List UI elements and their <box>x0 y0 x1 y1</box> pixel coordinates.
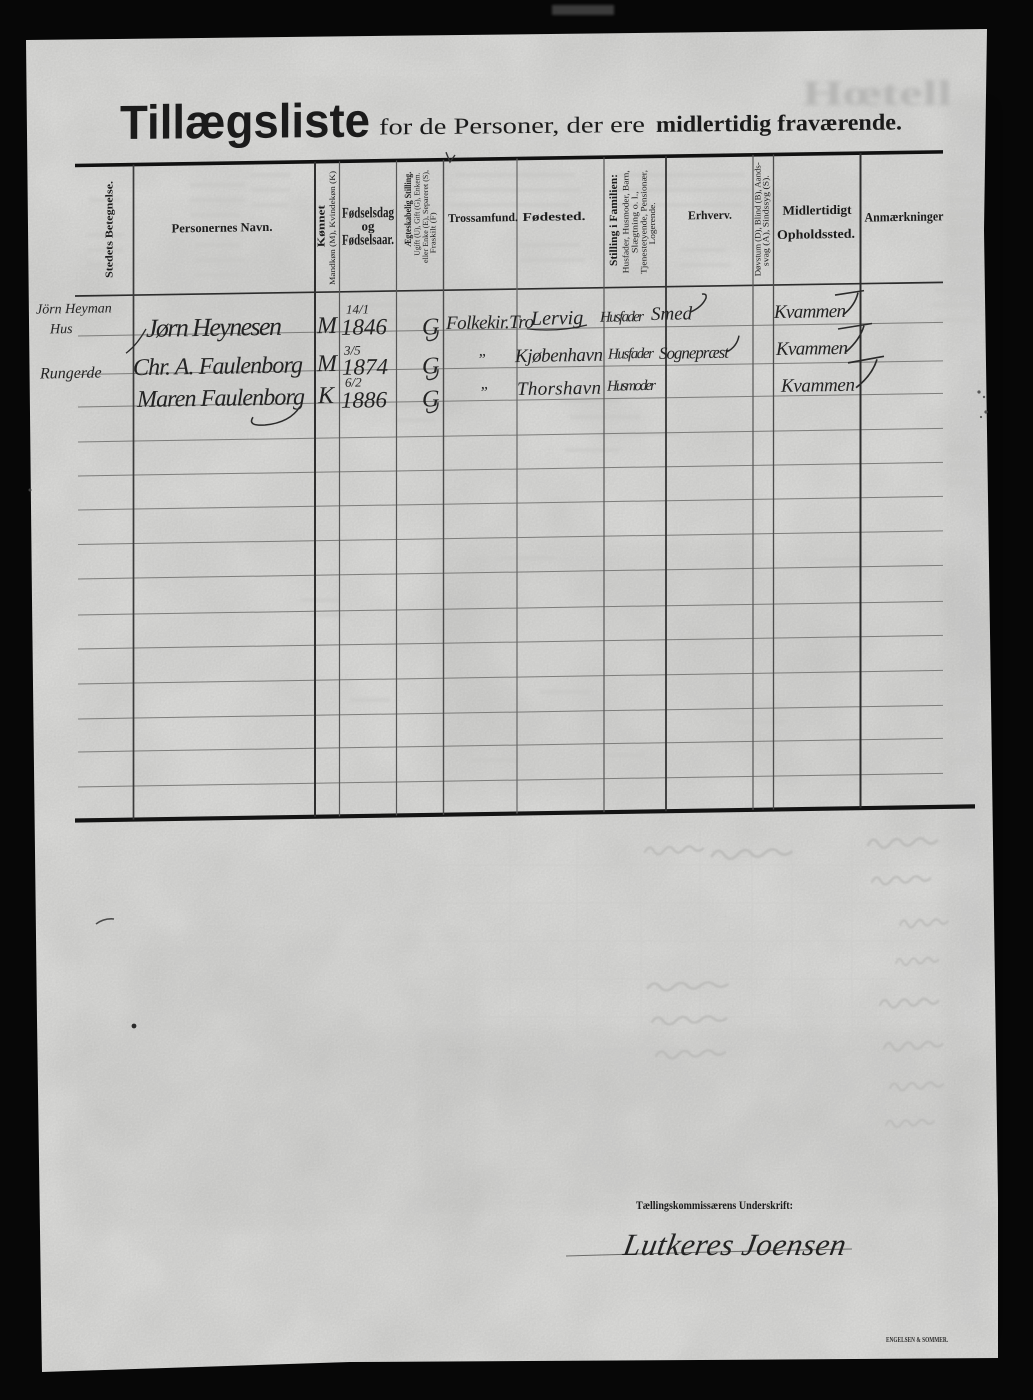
svg-text:Smed: Smed <box>651 303 693 325</box>
svg-text:Sognepræst: Sognepræst <box>659 343 730 363</box>
svg-text:1886: 1886 <box>341 387 387 413</box>
svg-text:1846: 1846 <box>341 314 387 340</box>
svg-text:Husfader: Husfader <box>599 309 644 326</box>
svg-text:Kvammen: Kvammen <box>775 338 848 360</box>
svg-text:”: ” <box>477 352 486 369</box>
svg-text:Husmoder: Husmoder <box>606 378 656 395</box>
svg-text:Tællingskommissærens Underskri: Tællingskommissærens Underskrift: <box>636 1200 793 1212</box>
svg-text:Husfader: Husfader <box>607 346 654 363</box>
svg-text:Folkekir.Tro: Folkekir.Tro <box>445 312 534 334</box>
svg-text:Jørn Heynesen: Jørn Heynesen <box>146 312 282 343</box>
svg-text:Erhverv.: Erhverv. <box>688 208 732 223</box>
svg-text:Personernes Navn.: Personernes Navn. <box>172 220 273 236</box>
svg-text:Tillægsliste: Tillægsliste <box>120 95 370 150</box>
svg-text:Stedets Betegnelse.: Stedets Betegnelse. <box>105 180 116 278</box>
svg-text:Kønnet: Kønnet <box>317 204 328 247</box>
svg-text:Chr. A. Faulenborg: Chr. A. Faulenborg <box>133 352 303 381</box>
svg-text:for de Personer, der ere: for de Personer, der ere <box>379 112 645 140</box>
svg-text:M: M <box>316 313 339 339</box>
svg-text:Rungerde: Rungerde <box>39 365 102 383</box>
svg-text:M: M <box>316 351 339 377</box>
svg-text:Trossamfund.: Trossamfund. <box>448 210 518 225</box>
svg-text:Mandkøn (M), Kvindekøn (K): Mandkøn (M), Kvindekøn (K) <box>328 170 337 285</box>
svg-text:K: K <box>317 383 336 409</box>
svg-text:Maren Faulenborg: Maren Faulenborg <box>136 384 305 413</box>
svg-text:midlertidig fraværende.: midlertidig fraværende. <box>656 109 902 136</box>
svg-text:Hus: Hus <box>49 322 73 337</box>
svg-text:Lervig: Lervig <box>530 307 583 330</box>
svg-text:Anmærkninger: Anmærkninger <box>865 208 944 224</box>
svg-text:Jörn Heyman: Jörn Heyman <box>36 301 112 317</box>
svg-text:Thorshavn: Thorshavn <box>517 378 601 400</box>
svg-text:ENGELSEN & SOMMER.: ENGELSEN & SOMMER. <box>886 1336 948 1344</box>
svg-text:Kvammen: Kvammen <box>780 375 855 397</box>
svg-text:Logerende.: Logerende. <box>647 202 657 244</box>
svg-text:Opholdssted.: Opholdssted. <box>777 226 855 242</box>
svg-text:Fødested.: Fødested. <box>522 209 585 224</box>
svg-text:Fraskilt (F): Fraskilt (F) <box>429 212 438 254</box>
svg-text:Kvammen: Kvammen <box>773 301 846 323</box>
svg-text:Fødselsaar.: Fødselsaar. <box>342 232 394 249</box>
svg-text:Hœtell: Hœtell <box>802 73 952 113</box>
svg-text:Lutkeres Joensen: Lutkeres Joensen <box>620 1227 849 1262</box>
svg-text:”: ” <box>479 385 488 402</box>
svg-text:Stilling i Familien:: Stilling i Familien: <box>608 174 620 266</box>
svg-text:Midlertidigt: Midlertidigt <box>783 202 853 218</box>
svg-text:og: og <box>362 218 375 233</box>
svg-text:Kjøbenhavn: Kjøbenhavn <box>514 345 603 367</box>
svg-text:svag (A), Sindssyg (S).: svag (A), Sindssyg (S). <box>761 175 771 266</box>
